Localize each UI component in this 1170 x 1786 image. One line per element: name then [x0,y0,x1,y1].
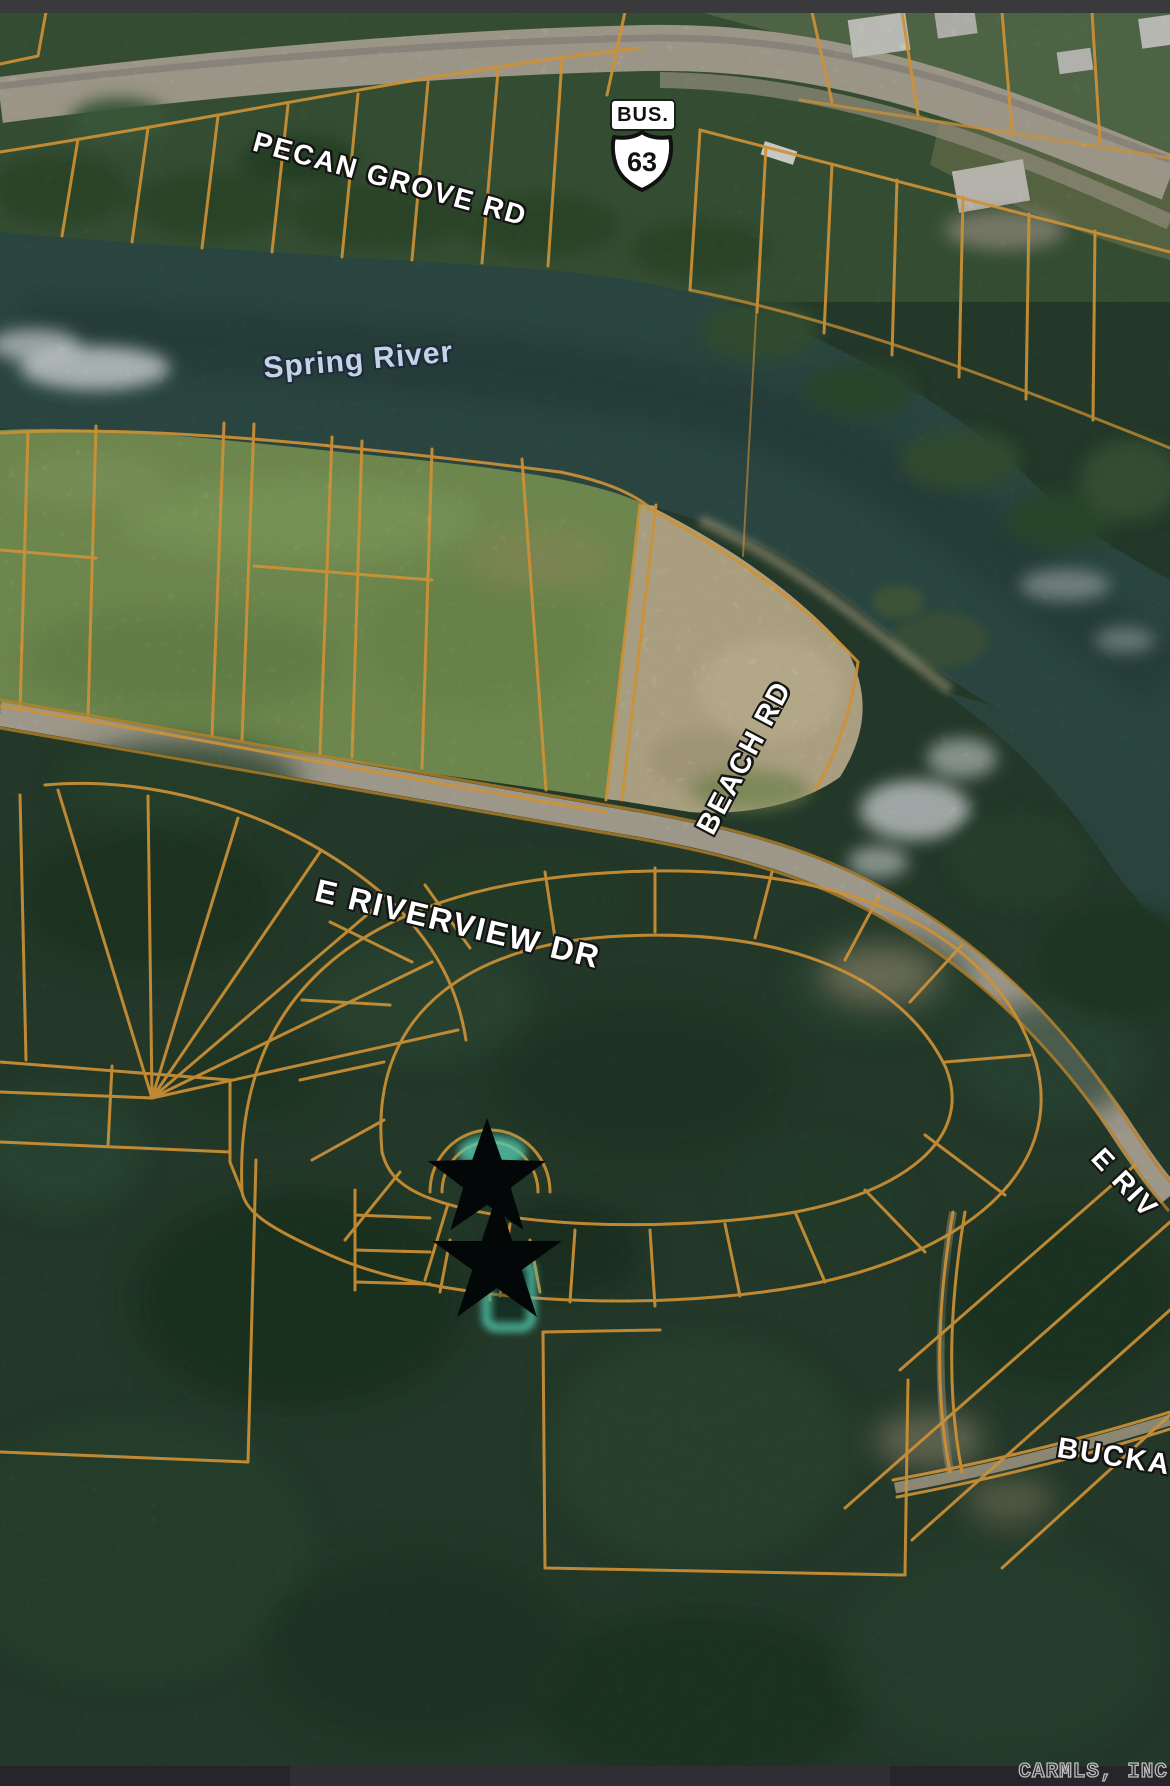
map-canvas [0,0,1170,1786]
satellite-map[interactable]: PECAN GROVE RD Spring River BEACH RD E R… [0,0,1170,1786]
top-letterbox-bar [0,0,1170,13]
watermark: CARMLS, INC [1018,1761,1168,1784]
texture-overlay [0,12,1170,1766]
us-route-shield-icon: 63 [608,128,676,192]
bus-route-banner: BUS. [612,101,674,129]
bottom-bar-segment [290,1766,890,1786]
route-number: 63 [627,147,657,177]
